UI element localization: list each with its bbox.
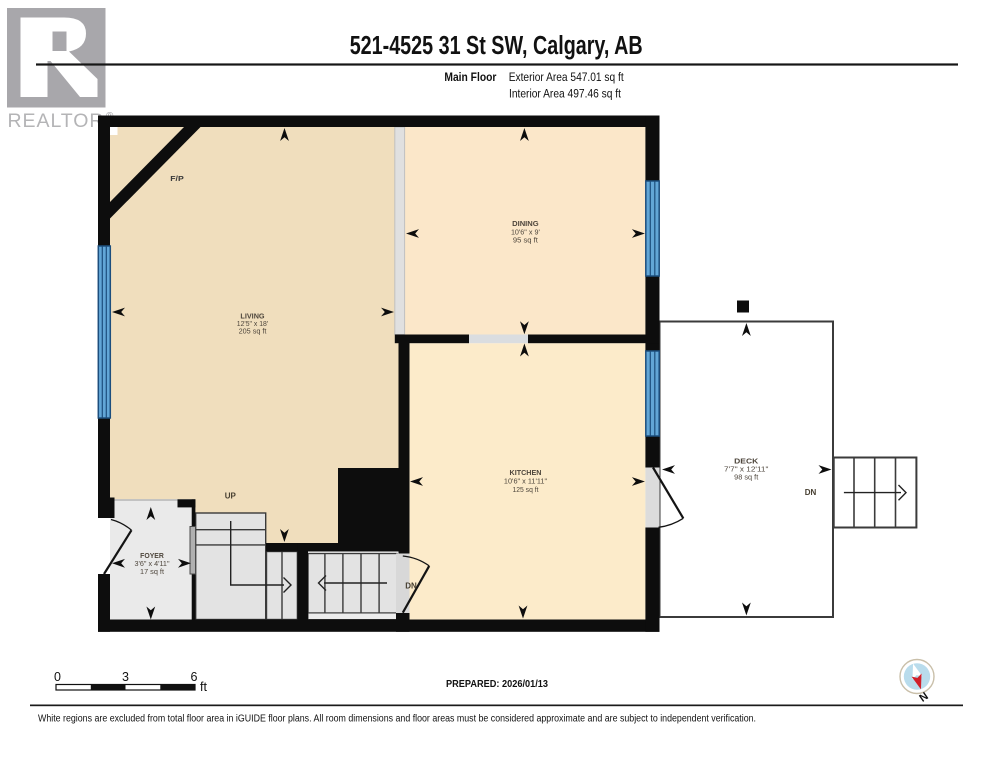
svg-text:N: N <box>917 690 930 704</box>
svg-text:F/P: F/P <box>170 174 184 183</box>
svg-text:Interior Area 497.46 sq ft: Interior Area 497.46 sq ft <box>509 87 621 101</box>
svg-text:205 sq ft: 205 sq ft <box>239 327 268 336</box>
svg-text:ft: ft <box>200 680 207 694</box>
svg-text:6: 6 <box>191 670 198 684</box>
svg-text:REALTOR: REALTOR <box>8 110 106 132</box>
svg-text:95 sq ft: 95 sq ft <box>513 236 539 245</box>
svg-text:PREPARED: 2026/01/13: PREPARED: 2026/01/13 <box>446 678 548 690</box>
svg-text:98 sq ft: 98 sq ft <box>734 473 759 482</box>
svg-text:Exterior Area 547.01 sq ft: Exterior Area 547.01 sq ft <box>509 70 624 84</box>
svg-text:UP: UP <box>225 492 237 501</box>
svg-text:White regions are excluded fro: White regions are excluded from total fl… <box>38 714 756 725</box>
svg-text:125 sq ft: 125 sq ft <box>513 485 540 494</box>
svg-text:17 sq ft: 17 sq ft <box>140 567 165 576</box>
svg-text:DN: DN <box>405 582 417 591</box>
svg-text:0: 0 <box>54 670 61 684</box>
svg-text:3: 3 <box>122 670 129 684</box>
svg-text:Main Floor: Main Floor <box>444 70 496 84</box>
svg-text:521-4525 31 St SW, Calgary, AB: 521-4525 31 St SW, Calgary, AB <box>350 32 643 60</box>
svg-text:DN: DN <box>805 488 817 497</box>
